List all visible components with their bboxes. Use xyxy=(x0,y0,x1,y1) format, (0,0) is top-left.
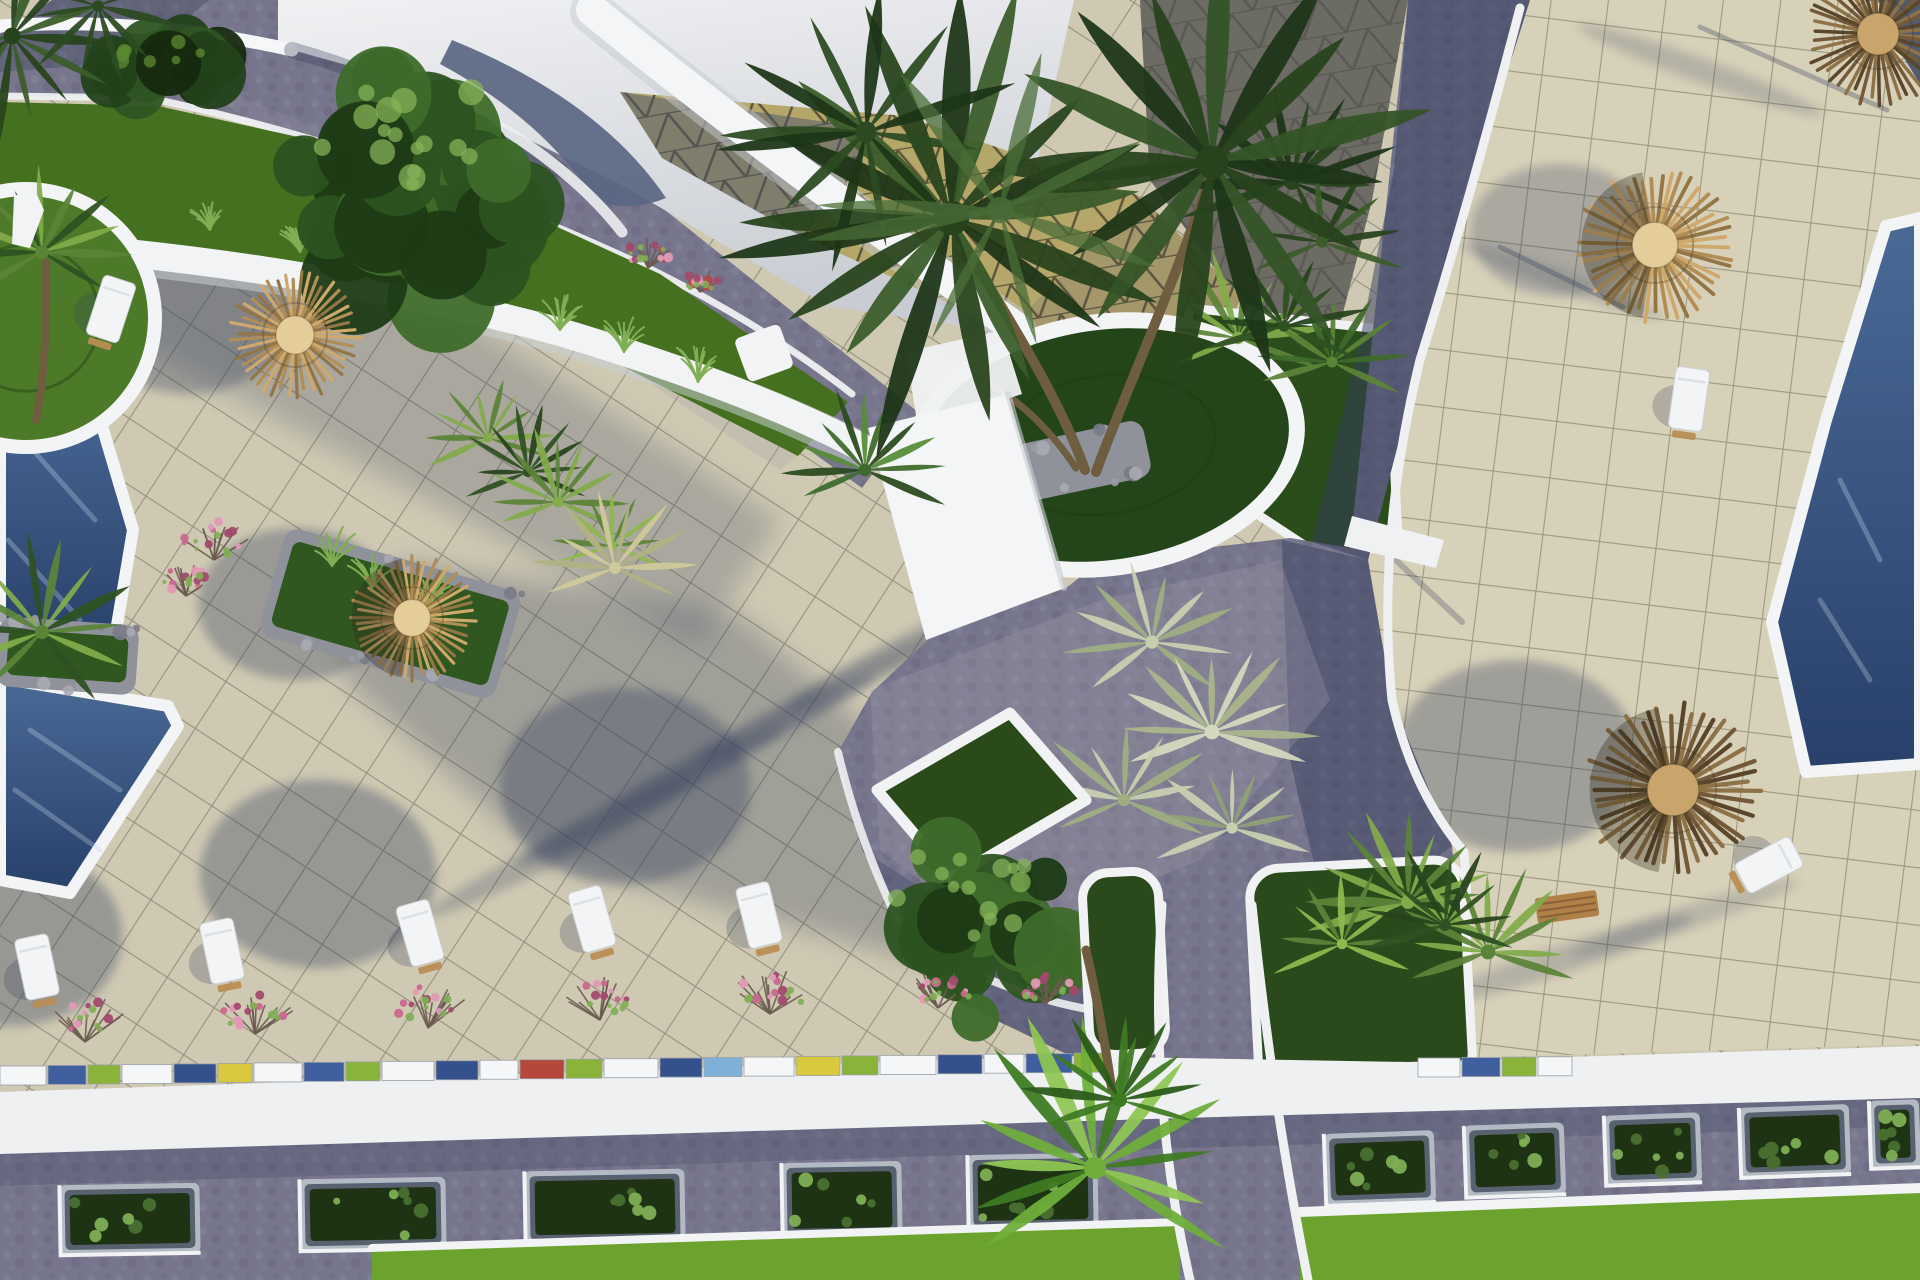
street-planter xyxy=(1604,1112,1702,1185)
street-planter xyxy=(524,1169,685,1246)
scene-canvas xyxy=(0,0,1920,1280)
street-planter xyxy=(1324,1130,1436,1206)
street-planter xyxy=(59,1183,200,1255)
street-planter xyxy=(299,1177,446,1252)
street-planter xyxy=(1464,1122,1566,1197)
street-planter xyxy=(1869,1099,1920,1169)
street-planter xyxy=(1739,1104,1851,1178)
street-planter xyxy=(781,1161,902,1239)
resort-aerial-render xyxy=(0,0,1920,1280)
scene-root xyxy=(0,0,1920,1280)
